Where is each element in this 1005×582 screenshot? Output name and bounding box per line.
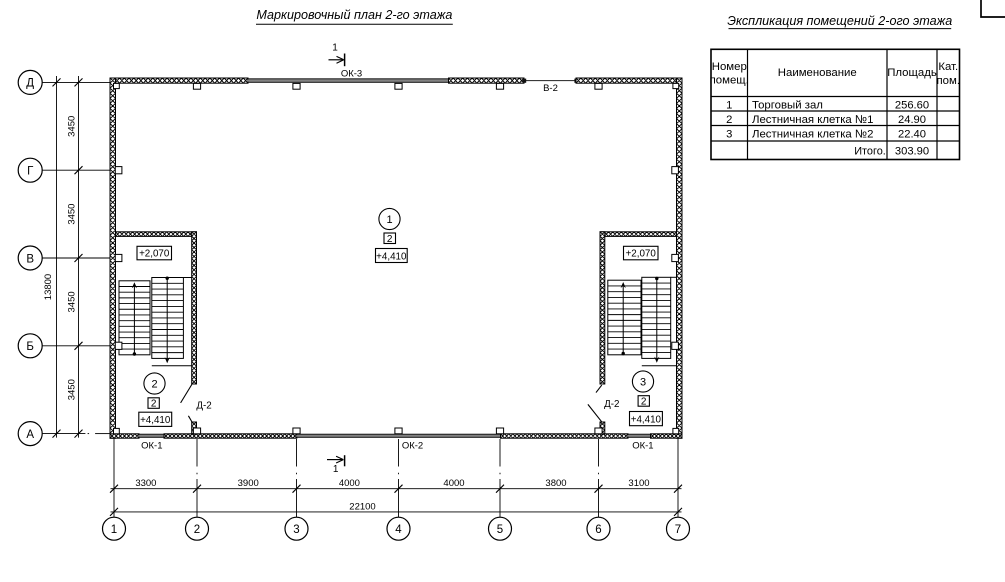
svg-text:2: 2	[151, 379, 157, 391]
svg-text:6: 6	[595, 524, 601, 536]
svg-text:Г: Г	[27, 166, 34, 178]
svg-text:3100: 3100	[628, 478, 649, 489]
svg-text:1: 1	[386, 214, 392, 226]
svg-text:1: 1	[111, 524, 117, 536]
svg-text:2: 2	[726, 114, 732, 126]
svg-text:+4,410: +4,410	[376, 251, 407, 262]
svg-text:2: 2	[641, 397, 647, 408]
svg-text:3450: 3450	[67, 379, 78, 400]
svg-text:2: 2	[387, 234, 393, 245]
svg-text:Д-2: Д-2	[196, 401, 211, 412]
svg-text:ОК-1: ОК-1	[141, 441, 162, 452]
svg-text:1: 1	[332, 43, 338, 54]
svg-text:3800: 3800	[545, 478, 566, 489]
svg-text:2: 2	[194, 524, 200, 536]
svg-text:Лестничная клетка №1: Лестничная клетка №1	[752, 114, 874, 126]
svg-text:3450: 3450	[67, 291, 78, 312]
svg-text:Кат.: Кат.	[938, 61, 958, 73]
svg-text:Номер: Номер	[712, 61, 747, 73]
svg-text:3: 3	[726, 129, 732, 141]
svg-text:Б: Б	[26, 341, 34, 353]
svg-text:13800: 13800	[43, 274, 54, 300]
svg-text:3450: 3450	[67, 204, 78, 225]
svg-text:Торговый зал: Торговый зал	[752, 100, 823, 112]
svg-text:7: 7	[675, 524, 681, 536]
svg-text:ОК-2: ОК-2	[402, 441, 423, 452]
svg-text:Экспликация помещений 2-ого эт: Экспликация помещений 2-ого этажа	[727, 14, 952, 28]
svg-text:3: 3	[293, 524, 299, 536]
svg-text:3300: 3300	[135, 478, 156, 489]
svg-text:Лестничная клетка №2: Лестничная клетка №2	[752, 129, 874, 141]
svg-text:4: 4	[395, 524, 402, 536]
svg-text:256.60: 256.60	[895, 100, 929, 112]
svg-text:ОК-1: ОК-1	[632, 441, 653, 452]
svg-text:Итого.: Итого.	[854, 145, 886, 157]
svg-text:4000: 4000	[339, 478, 360, 489]
svg-text:+4,410: +4,410	[140, 415, 171, 426]
svg-text:ОК-3: ОК-3	[341, 69, 362, 80]
svg-text:+4,410: +4,410	[631, 415, 662, 426]
svg-text:Маркировочный план 2-го этажа: Маркировочный план 2-го этажа	[256, 8, 452, 22]
svg-text:+2,070: +2,070	[139, 249, 170, 260]
svg-text:Наименование: Наименование	[778, 67, 857, 79]
svg-text:Площадь: Площадь	[887, 67, 937, 79]
svg-text:3900: 3900	[238, 478, 259, 489]
svg-text:В: В	[26, 253, 34, 265]
svg-text:пом.: пом.	[937, 75, 961, 87]
svg-text:1: 1	[333, 464, 339, 475]
svg-text:помещ.: помещ.	[710, 75, 749, 87]
svg-text:5: 5	[497, 524, 503, 536]
svg-text:Д-2: Д-2	[604, 399, 619, 410]
svg-text:22100: 22100	[349, 501, 375, 512]
svg-text:В-2: В-2	[543, 83, 558, 94]
svg-text:24.90: 24.90	[898, 114, 926, 126]
svg-text:Д: Д	[26, 78, 34, 90]
svg-text:4000: 4000	[443, 478, 464, 489]
svg-text:3450: 3450	[67, 116, 78, 137]
svg-text:+2,070: +2,070	[626, 249, 657, 260]
svg-text:3: 3	[640, 377, 646, 389]
svg-text:22.40: 22.40	[898, 129, 926, 141]
svg-text:303.90: 303.90	[895, 146, 929, 158]
svg-text:2: 2	[151, 399, 157, 410]
svg-text:А: А	[26, 429, 34, 441]
svg-text:1: 1	[726, 100, 732, 112]
